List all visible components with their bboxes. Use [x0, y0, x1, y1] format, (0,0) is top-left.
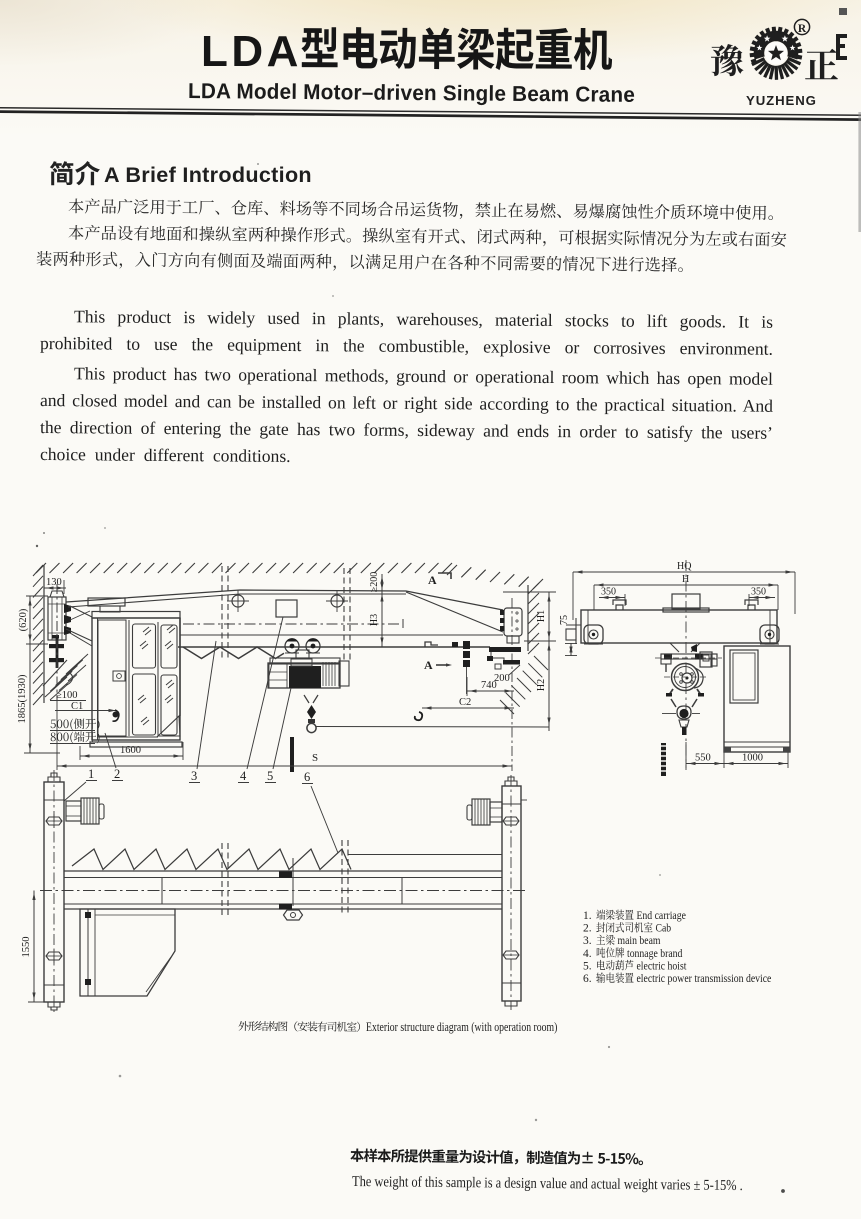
svg-text:4.: 4. — [583, 948, 592, 960]
svg-text:130: 130 — [46, 577, 62, 588]
svg-text:75: 75 — [559, 615, 570, 625]
svg-text:C2: C2 — [459, 697, 471, 708]
svg-text:1550: 1550 — [21, 937, 32, 958]
svg-text:6.: 6. — [583, 973, 592, 985]
svg-text:H2: H2 — [536, 679, 547, 691]
svg-text:2: 2 — [114, 767, 120, 781]
svg-text:S: S — [312, 752, 318, 764]
svg-text:5.: 5. — [583, 960, 592, 972]
svg-text:tonnage brand: tonnage brand — [627, 947, 683, 960]
svg-text:1.: 1. — [583, 910, 592, 922]
svg-text:R: R — [798, 23, 807, 35]
svg-text:electric hoist: electric hoist — [636, 960, 686, 973]
svg-text:5: 5 — [267, 769, 273, 783]
svg-text:3: 3 — [191, 769, 197, 783]
svg-text:LDA: LDA — [201, 27, 302, 76]
svg-text:550: 550 — [695, 753, 711, 764]
svg-text:YUZHENG: YUZHENG — [746, 93, 817, 108]
svg-text:The weight of this sample is a: The weight of this sample is a design va… — [352, 1173, 743, 1193]
svg-text:6: 6 — [304, 770, 310, 784]
svg-text:HQ: HQ — [677, 561, 692, 572]
svg-text:2.: 2. — [583, 923, 592, 935]
svg-text:3.: 3. — [583, 935, 592, 947]
svg-text:4: 4 — [240, 769, 247, 783]
svg-text:1000: 1000 — [742, 753, 763, 764]
svg-text:1: 1 — [88, 767, 94, 781]
svg-text:H3: H3 — [369, 614, 380, 626]
svg-text:H1: H1 — [536, 610, 547, 622]
svg-text:LDA Model Motor–driven Sing: LDA Model Motor–driven Single Beam Crane — [188, 80, 635, 107]
svg-text:main beam: main beam — [618, 934, 662, 947]
svg-text:Exterior structure diagram (wi: Exterior structure diagram (with operati… — [366, 1021, 558, 1034]
svg-text:End carriage: End carriage — [636, 909, 686, 922]
svg-text:350: 350 — [601, 587, 616, 598]
svg-text:350: 350 — [751, 587, 766, 598]
svg-text:A: A — [424, 658, 433, 672]
svg-text:A Brief Introduction: A Brief Introduction — [104, 162, 312, 187]
svg-text:electric power transmission de: electric power transmission device — [636, 972, 771, 985]
svg-text:740: 740 — [481, 680, 497, 691]
svg-text:≥100: ≥100 — [56, 690, 78, 701]
svg-text:Cab: Cab — [655, 922, 671, 935]
svg-text:1865(1930): 1865(1930) — [17, 674, 28, 723]
svg-text:A: A — [428, 573, 437, 587]
svg-text:(620): (620) — [18, 608, 29, 631]
svg-text:≥200: ≥200 — [369, 572, 380, 593]
